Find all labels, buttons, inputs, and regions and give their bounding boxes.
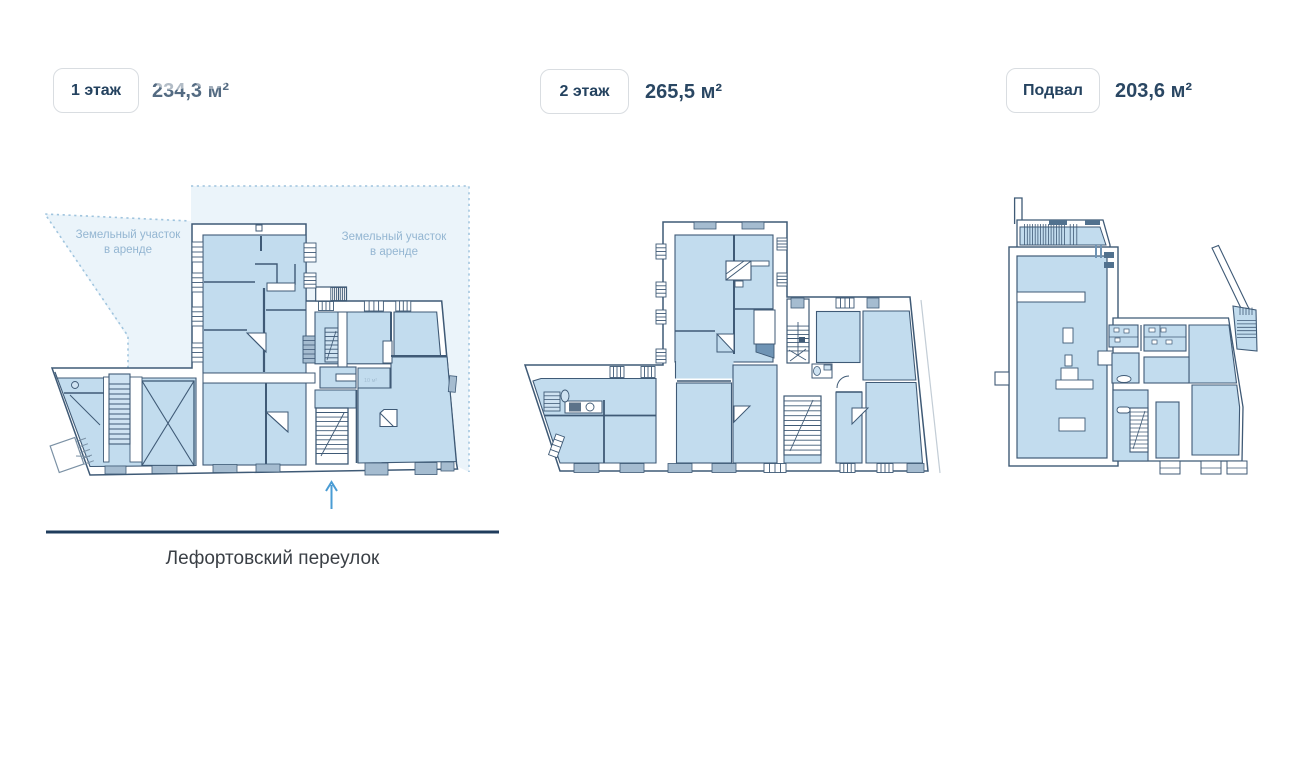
svg-text:Земельный участок: Земельный участок [342,231,448,243]
svg-text:в аренде: в аренде [104,244,152,256]
svg-text:10 м²: 10 м² [364,378,377,384]
svg-text:в аренде: в аренде [370,246,418,258]
svg-text:Земельный участок: Земельный участок [76,229,182,241]
